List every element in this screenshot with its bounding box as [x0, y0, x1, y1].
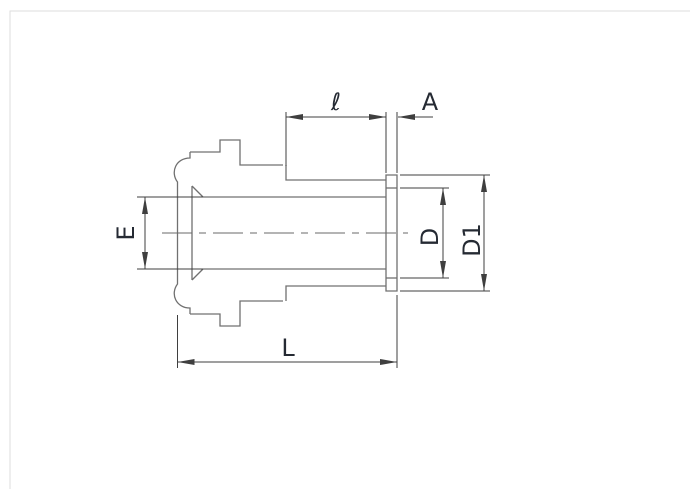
hex-steps-bottom [190, 301, 283, 326]
arrowhead-down [440, 261, 446, 278]
arrowhead-left [286, 114, 303, 120]
arrowhead-up [142, 197, 148, 214]
dim-label-overall-length: L [281, 334, 295, 362]
arrowhead-left [178, 359, 195, 365]
dim-label-tube-od: D [416, 228, 444, 246]
dimension-l-script: ℓ [286, 88, 386, 173]
dim-label-tube-length: ℓ [330, 88, 341, 116]
dim-label-sleeve-width: A [422, 88, 439, 116]
drawing-canvas: ℓ A E D D1 L [0, 0, 694, 489]
dimension-A: A [397, 88, 439, 173]
arrowhead-down [142, 252, 148, 269]
socket-taper-top [192, 186, 203, 197]
socket-taper-bottom [192, 269, 203, 280]
page-edge [10, 11, 690, 489]
arrowhead-left [398, 114, 415, 120]
technical-drawing: ℓ A E D D1 L [0, 0, 694, 489]
hex-steps-top [190, 140, 283, 165]
arrowhead-right [380, 359, 397, 365]
dim-label-sleeve-od: D1 [458, 223, 486, 257]
arrowhead-up [440, 188, 446, 205]
shoulder-edge-top [286, 165, 386, 180]
arrowhead-right [369, 114, 386, 120]
dimension-L: L [178, 295, 398, 368]
arrowhead-down [481, 274, 487, 291]
shoulder-edge-bottom [286, 286, 386, 301]
dimension-D1: D1 [400, 175, 490, 291]
arrowhead-up [481, 175, 487, 192]
dim-label-socket-bore: E [112, 225, 140, 240]
